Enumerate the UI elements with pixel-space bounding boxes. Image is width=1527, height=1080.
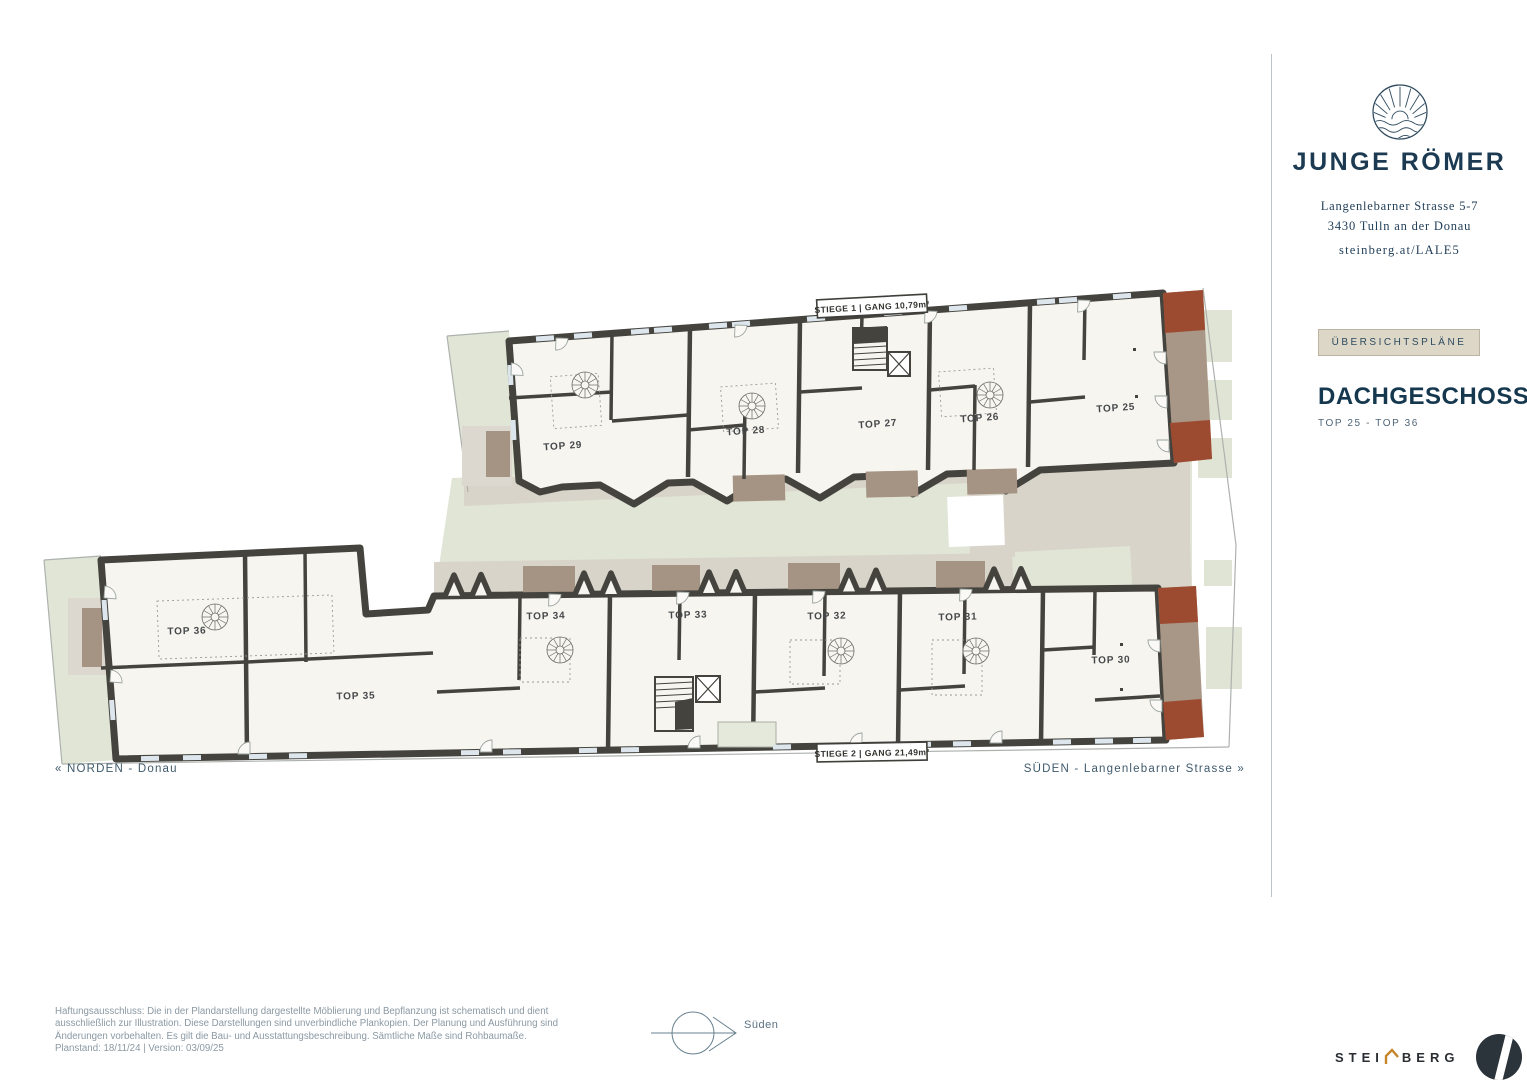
compass-label: Süden — [744, 1019, 778, 1031]
stiege2-label: STIEGE 2 | GANG 21,49m² — [814, 747, 929, 759]
stiege2-label-box: STIEGE 2 | GANG 21,49m² — [814, 742, 929, 762]
unit-label-top33: TOP 33 — [668, 609, 707, 621]
overview-plans-button[interactable]: ÜBERSICHTSPLÄNE — [1318, 329, 1480, 356]
unit-label-top35: TOP 35 — [336, 690, 375, 702]
floor-subtitle: TOP 25 - TOP 36 — [1318, 418, 1419, 429]
unit-label-top31: TOP 31 — [938, 611, 977, 623]
compass-icon — [651, 1012, 736, 1054]
brand-address: Langenlebarner Strasse 5-7 3430 Tulln an… — [1272, 196, 1527, 236]
steinberg-logo: STEI BERG — [1335, 1033, 1523, 1080]
steinberg-wordmark-left: STEI — [1335, 1050, 1384, 1065]
south-direction-label: SÜDEN - Langenlebarner Strasse » — [1024, 763, 1245, 775]
junge-roemer-logo-icon — [1364, 76, 1436, 148]
unit-label-top34: TOP 34 — [526, 610, 565, 622]
unit-label-top36: TOP 36 — [167, 625, 206, 637]
disclaimer-text: Haftungsausschluss: Die in der Plandarst… — [55, 1006, 563, 1056]
unit-label-top32: TOP 32 — [807, 610, 846, 622]
steinberg-circle-icon — [1475, 1033, 1523, 1080]
page: TOP 25 TOP 26 TOP 27 TOP 28 TOP 29 TOP 3… — [0, 0, 1527, 1080]
unit-label-top30: TOP 30 — [1091, 654, 1130, 666]
website-link[interactable]: steinberg.at/LALE5 — [1272, 243, 1527, 258]
brand-name: JUNGE RÖMER — [1272, 148, 1527, 177]
steinberg-wordmark-right: BERG — [1402, 1050, 1460, 1065]
north-direction-label: « NORDEN - Donau — [55, 763, 178, 775]
address-line-1: Langenlebarner Strasse 5-7 — [1272, 196, 1527, 216]
steinberg-roof-icon — [1384, 1048, 1399, 1065]
sidebar: JUNGE RÖMER Langenlebarner Strasse 5-7 3… — [1272, 0, 1527, 1080]
address-line-2: 3430 Tulln an der Donau — [1272, 216, 1527, 236]
floor-title: DACHGESCHOSS — [1318, 383, 1527, 411]
